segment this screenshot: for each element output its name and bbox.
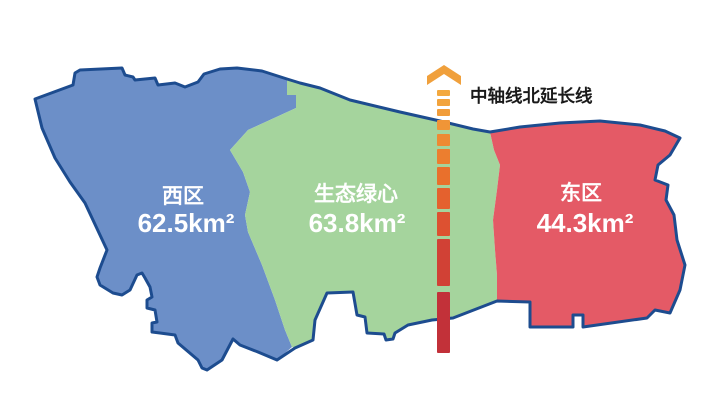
- region-west-name-label: 西区: [162, 185, 204, 208]
- axis-dash: [437, 134, 450, 146]
- axis-dash: [437, 239, 450, 286]
- region-east-area-label: 44.3km²: [537, 208, 634, 238]
- region-east-name-label: 东区: [560, 181, 602, 205]
- map-canvas: 中轴线北延长线 西区 62.5km² 生态绿心 63.8km² 东区 44.3k…: [0, 0, 718, 407]
- axis-dash: [437, 99, 450, 106]
- axis-dash: [437, 167, 450, 185]
- axis-label: 中轴线北延长线: [470, 86, 593, 106]
- region-green-heart-area-label: 63.8km²: [309, 208, 406, 238]
- axis-dash: [437, 188, 450, 209]
- axis-arrow-icon: [427, 65, 461, 85]
- axis-dash: [437, 109, 450, 116]
- infographic-map: 中轴线北延长线 西区 62.5km² 生态绿心 63.8km² 东区 44.3k…: [0, 0, 718, 407]
- axis-dash: [437, 120, 450, 130]
- axis-dashes: [437, 90, 450, 353]
- region-green-heart-name-label: 生态绿心: [314, 182, 398, 206]
- axis-dash: [437, 212, 450, 236]
- axis-dash: [437, 90, 450, 96]
- axis-dash: [437, 292, 450, 353]
- region-west-area-label: 62.5km²: [138, 208, 235, 238]
- axis-dash: [437, 149, 450, 164]
